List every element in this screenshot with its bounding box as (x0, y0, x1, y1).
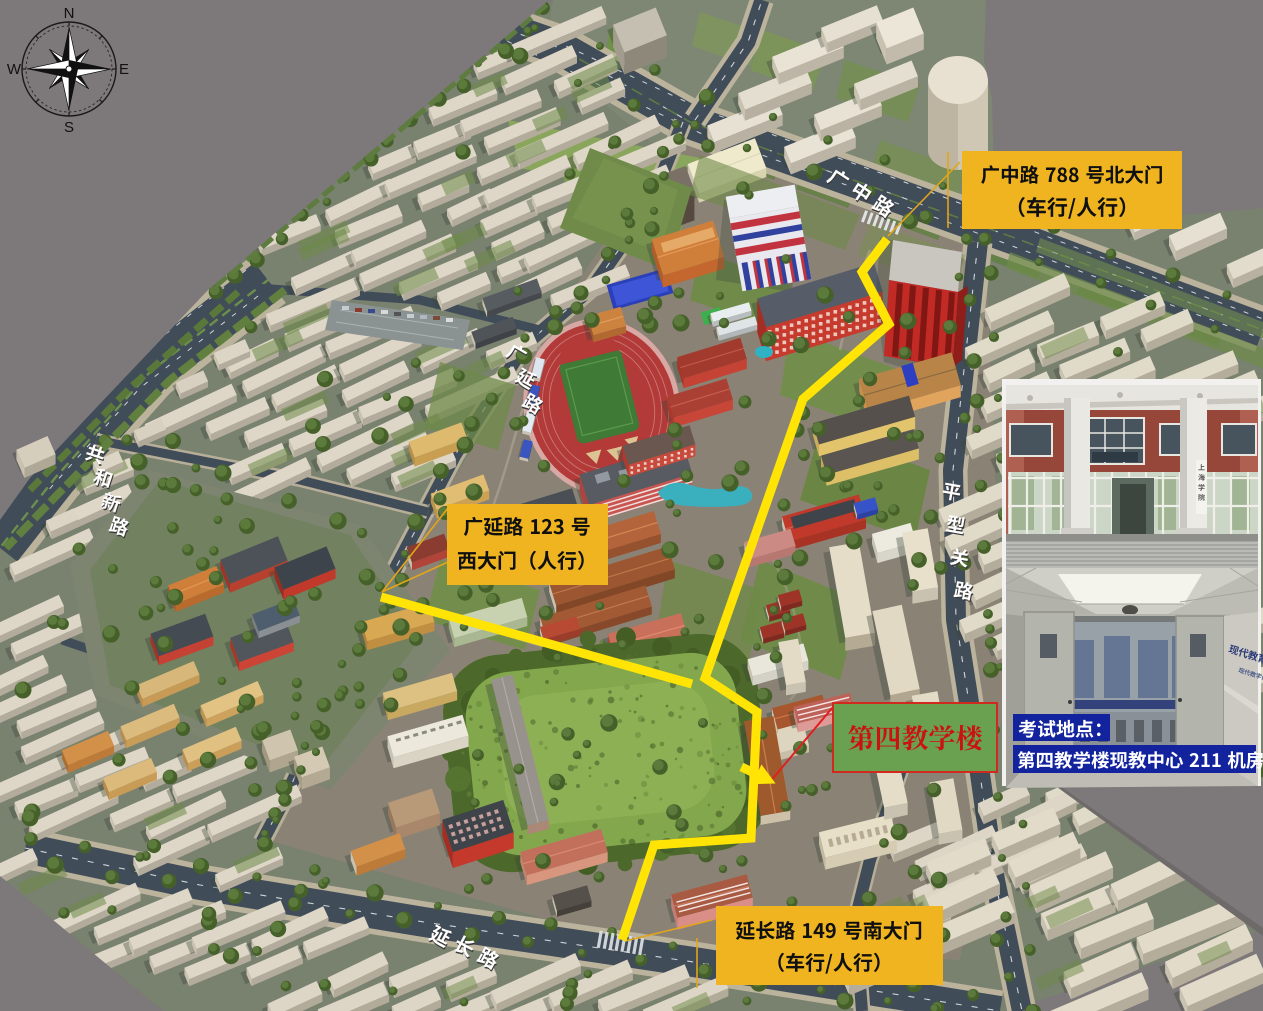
svg-text:E: E (119, 61, 129, 78)
svg-text:N: N (64, 5, 75, 22)
svg-text:W: W (7, 61, 22, 78)
svg-text:S: S (64, 119, 74, 136)
